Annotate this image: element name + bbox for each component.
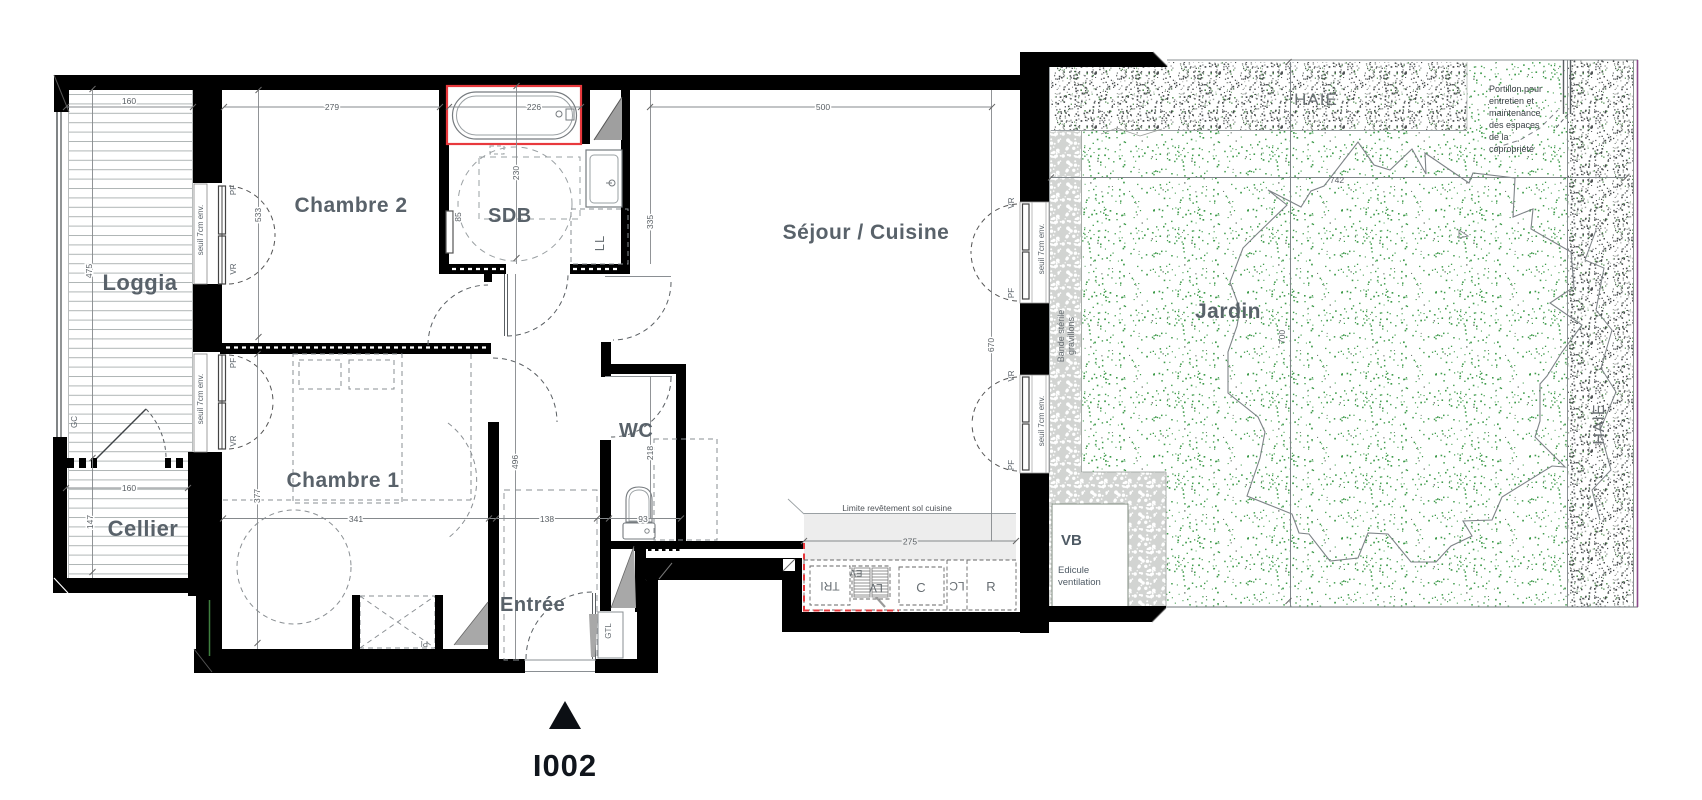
svg-text:HAIE: HAIE [1294,90,1338,109]
svg-text:475: 475 [84,264,94,278]
svg-text:TRI: TRI [820,579,839,593]
svg-text:seuil 7cm env.: seuil 7cm env. [1037,396,1046,447]
svg-text:EV: EV [849,567,862,578]
svg-text:VR: VR [229,263,238,274]
svg-text:138: 138 [540,514,554,524]
svg-text:C: C [916,580,925,595]
svg-text:218: 218 [645,446,655,460]
svg-text:PF: PF [229,185,238,195]
svg-text:Entrée: Entrée [500,594,565,616]
svg-text:500: 500 [816,102,830,112]
svg-text:226: 226 [527,102,541,112]
svg-text:PF: PF [1007,460,1016,470]
svg-text:533: 533 [253,208,263,222]
svg-text:PF: PF [1007,288,1016,298]
svg-text:I002: I002 [533,748,597,783]
svg-text:LC: LC [949,579,965,593]
svg-text:377: 377 [252,489,262,503]
svg-text:147: 147 [85,515,95,529]
svg-text:LV: LV [869,581,883,595]
svg-text:700: 700 [1277,330,1287,344]
svg-text:Edicule: Edicule [1058,565,1089,576]
svg-text:GC: GC [70,416,79,428]
svg-text:Loggia: Loggia [102,270,177,295]
svg-text:341: 341 [349,514,363,524]
svg-text:de la: de la [1489,132,1509,142]
svg-text:maintenance: maintenance [1489,108,1541,118]
svg-text:ventilation: ventilation [1058,577,1101,588]
svg-text:Jardin: Jardin [1195,300,1261,323]
svg-text:93: 93 [638,514,648,524]
svg-text:LL: LL [592,235,607,251]
svg-text:85: 85 [453,212,463,222]
svg-text:gravillons: gravillons [1066,316,1076,355]
svg-text:742: 742 [1330,175,1344,185]
svg-text:160: 160 [122,96,136,106]
svg-text:Cellier: Cellier [108,516,179,541]
svg-text:VB: VB [1061,532,1082,549]
svg-text:WC: WC [619,420,653,442]
svg-text:496: 496 [510,455,520,469]
svg-text:des espaces: des espaces [1489,120,1540,130]
svg-text:Séjour / Cuisine: Séjour / Cuisine [783,221,950,244]
svg-text:Bande stérile: Bande stérile [1056,310,1066,363]
svg-text:160: 160 [122,483,136,493]
svg-text:entretien et: entretien et [1489,96,1535,106]
svg-text:seuil 7cm env.: seuil 7cm env. [196,205,205,256]
svg-text:VR: VR [1007,197,1016,208]
svg-text:Chambre 1: Chambre 1 [286,469,399,492]
svg-text:230: 230 [511,166,521,180]
svg-text:GTL: GTL [604,623,613,639]
svg-text:Limite revêtement sol cuisine: Limite revêtement sol cuisine [842,503,952,513]
svg-text:HAIE: HAIE [1591,403,1608,444]
svg-text:seuil 7cm env.: seuil 7cm env. [196,374,205,425]
svg-text:SDB: SDB [488,205,532,227]
svg-text:Chambre 2: Chambre 2 [294,194,407,217]
svg-text:670: 670 [986,338,996,352]
svg-text:R: R [986,579,995,594]
svg-text:279: 279 [325,102,339,112]
svg-text:275: 275 [903,537,917,547]
svg-text:VR: VR [1007,370,1016,381]
svg-text:Portillon pour: Portillon pour [1489,84,1542,94]
svg-text:PF: PF [229,358,238,368]
svg-text:copropriété: copropriété [1489,144,1534,154]
svg-text:VR: VR [229,435,238,446]
svg-text:335: 335 [645,215,655,229]
svg-text:seuil 7cm env.: seuil 7cm env. [1037,224,1046,275]
svg-text:Pl: Pl [421,639,428,648]
